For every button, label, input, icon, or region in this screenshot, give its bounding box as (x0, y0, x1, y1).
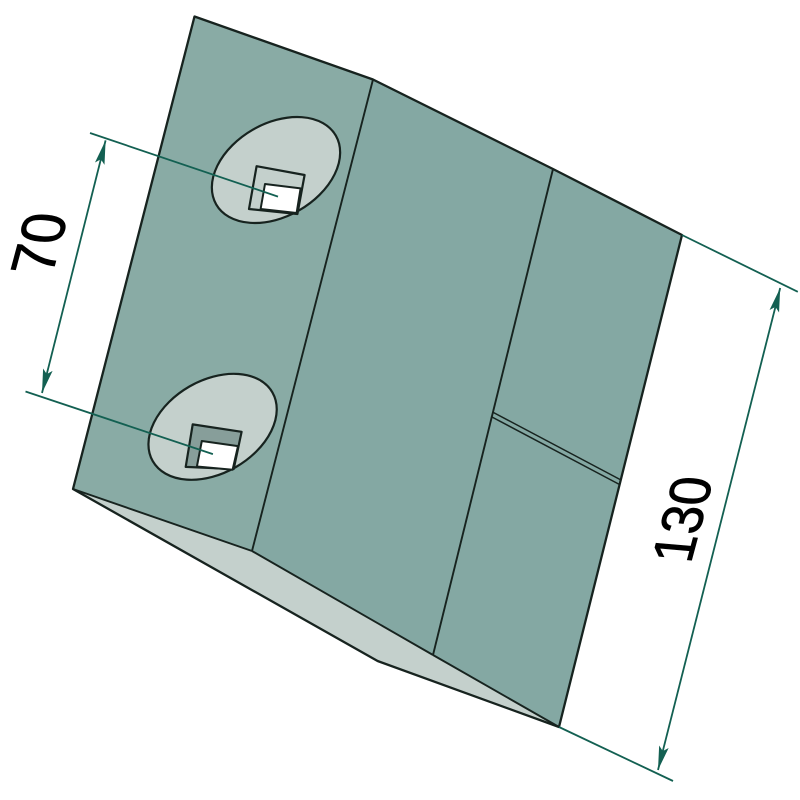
svg-text:70: 70 (0, 210, 82, 277)
